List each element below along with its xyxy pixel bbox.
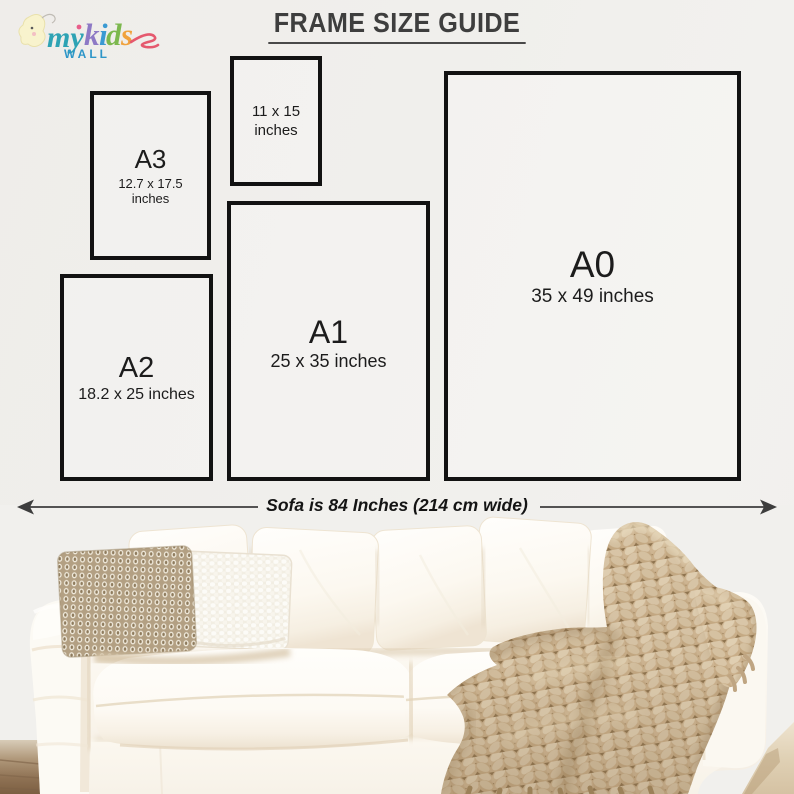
svg-text:WALL: WALL	[64, 47, 110, 61]
